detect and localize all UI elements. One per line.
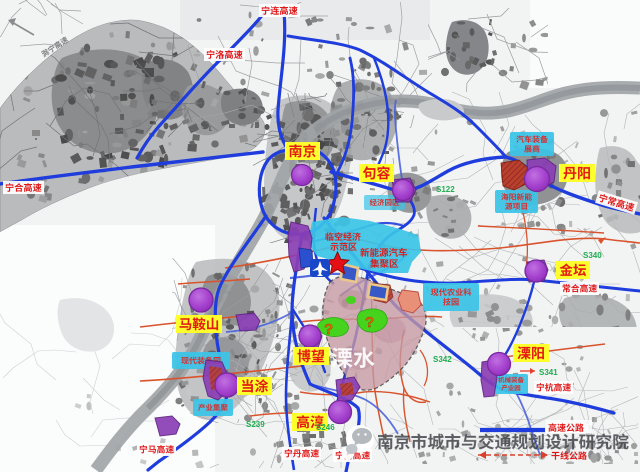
svg-text:S239: S239 (246, 420, 265, 429)
svg-text:?: ? (324, 321, 333, 338)
svg-text:S341: S341 (539, 368, 558, 377)
svg-text:S340: S340 (583, 251, 602, 260)
svg-text:S246: S246 (316, 423, 335, 432)
svg-text:S342: S342 (433, 355, 452, 364)
svg-text:?: ? (365, 314, 374, 331)
svg-text:S122: S122 (436, 185, 455, 194)
